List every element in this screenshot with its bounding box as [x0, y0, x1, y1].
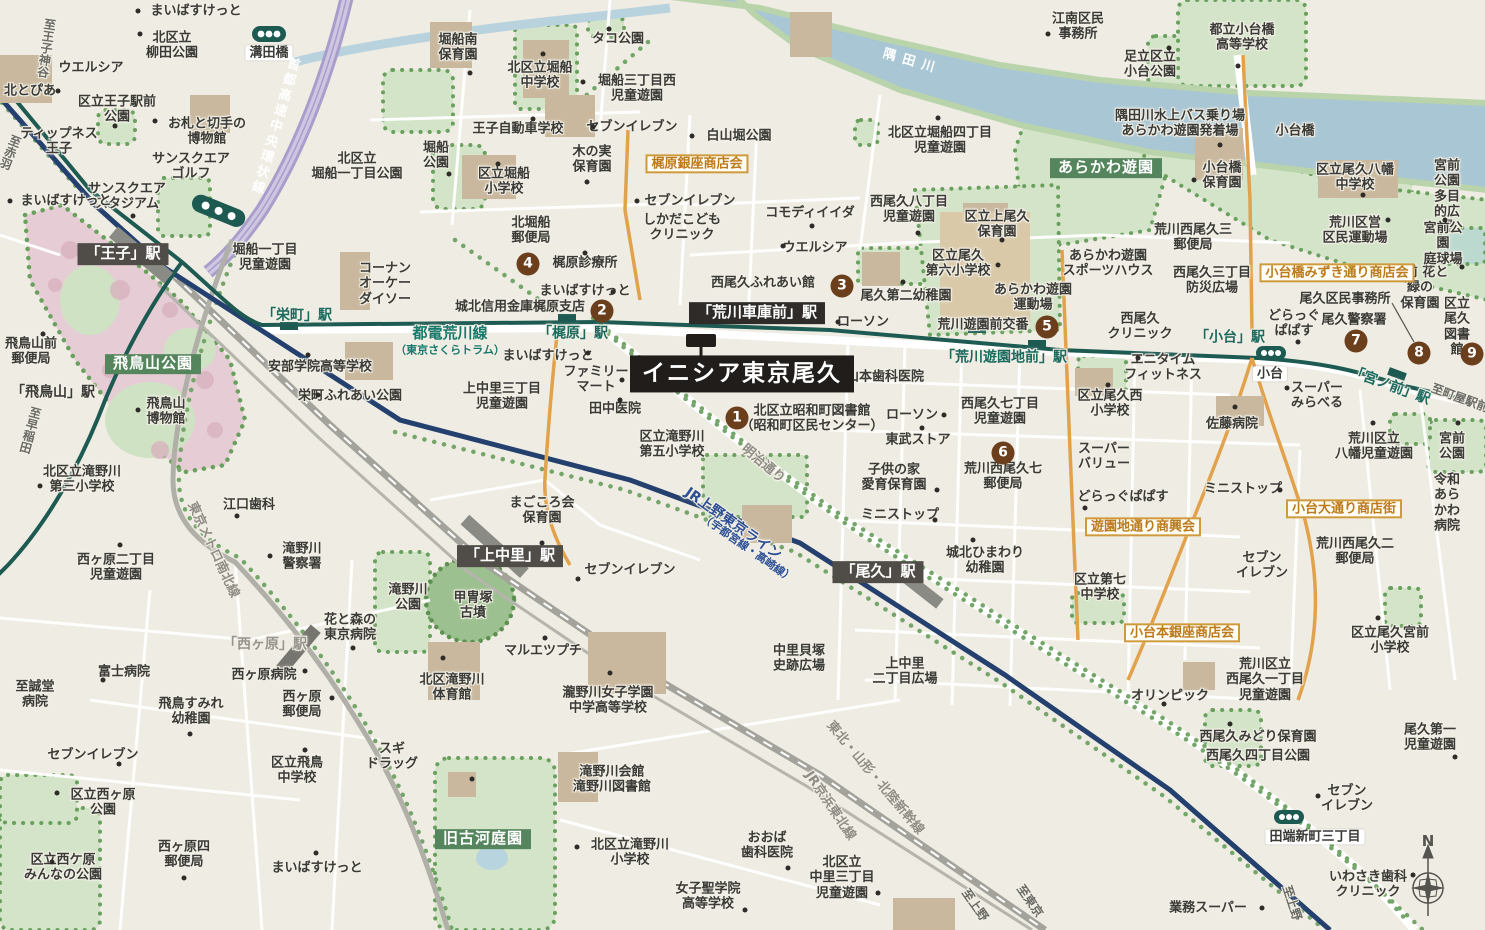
- poi-dot: [1296, 340, 1301, 345]
- place-label: 尾久第一 児童遊園: [1404, 723, 1456, 754]
- poi-dot: [607, 27, 612, 32]
- place-label: 北区立 中里三丁目 児童遊園: [809, 855, 874, 901]
- poi-dot: [1236, 64, 1241, 69]
- place-label: 西尾久八丁目 児童遊園: [870, 195, 948, 226]
- rail-line-name-label: JR上野東京ライン: [682, 485, 785, 564]
- place-label: 女子聖学院 高等学校: [675, 882, 740, 913]
- poi-dot: [618, 398, 623, 403]
- place-label: 区立尾久宮前 小学校: [1351, 626, 1429, 657]
- poi-dot: [901, 280, 906, 285]
- poi-dot: [303, 669, 308, 674]
- waterway-or-road-name-label: 首都高速中央環状線: [247, 55, 301, 198]
- place-label: 北区立 柳田公園: [146, 31, 198, 62]
- poi-dot: [836, 320, 841, 325]
- poi-dot: [576, 577, 581, 582]
- place-label: 北区立堀船 中学校: [507, 61, 572, 92]
- place-label: 区立上尾久 保育園: [964, 210, 1029, 241]
- place-label: 区立西ケ原 みんなの公園: [24, 853, 102, 884]
- poi-dot: [131, 214, 136, 219]
- place-label: 荒川西尾久七 郵便局: [964, 462, 1042, 493]
- place-label: ローソン: [886, 407, 938, 422]
- poi-dot: [1285, 386, 1290, 391]
- place-label: 区立第七 中学校: [1074, 573, 1126, 604]
- poi-dot: [314, 851, 319, 856]
- place-label: サンスクエア スタジアム: [88, 182, 166, 213]
- place-label: 上中里 二丁目広場: [872, 657, 937, 688]
- place-label: セブンイレブン: [644, 193, 735, 208]
- place-label: サンスクエア ゴルフ: [152, 152, 230, 183]
- poi-dot: [1316, 794, 1321, 799]
- place-label: 王子自動車学校: [472, 121, 563, 136]
- place-label: コモディイイダ: [765, 205, 855, 220]
- park-name-label: あらかわ遊園: [1050, 158, 1162, 178]
- direction-label: 至東京: [1014, 882, 1046, 920]
- poi-dot: [441, 656, 446, 661]
- place-label: 荒川遊園前交番: [937, 317, 1028, 332]
- poi-dot: [591, 125, 596, 130]
- rail-line-name-label: 東京メトロ南北線: [184, 500, 242, 601]
- numbered-marker-5: 5: [1036, 316, 1059, 339]
- poi-dot: [41, 332, 46, 337]
- tram-station-label: 「栄町」駅: [262, 308, 332, 325]
- poi-dot: [8, 199, 13, 204]
- place-label: スーパー みらべる: [1291, 381, 1343, 412]
- poi-dot: [1386, 218, 1391, 223]
- place-label: 北堀船 郵便局: [511, 216, 550, 247]
- tram-station-label: 「宮ノ前」駅: [1348, 364, 1433, 408]
- poi-dot: [1260, 906, 1265, 911]
- place-label: 宮前公園 庭球場: [1422, 221, 1464, 267]
- place-label: 尾久第二幼稚園: [860, 288, 951, 303]
- place-label: 区立堀船 小学校: [478, 167, 530, 198]
- poi-dot: [447, 172, 452, 177]
- poi-dot: [1192, 178, 1197, 183]
- map-labels-layer: まいばすけっと北区立 柳田公園溝田橋ウエルシア北とぴあ区立王子駅前 公園お札と切…: [0, 0, 1485, 930]
- place-label: セブンイレブン: [584, 562, 675, 577]
- poi-dot: [583, 251, 588, 256]
- poi-dot: [971, 538, 976, 543]
- tram-station-label: 「梶原」駅: [538, 326, 608, 343]
- place-label: 白山堀公園: [706, 128, 771, 143]
- place-label: 至誠堂 病院: [15, 680, 54, 711]
- numbered-marker-8: 8: [1408, 342, 1431, 365]
- poi-dot: [1460, 265, 1465, 270]
- place-label: 荒川西尾久二 郵便局: [1316, 537, 1394, 568]
- poi-dot: [781, 244, 786, 249]
- place-label: 西ヶ原二丁目 児童遊園: [77, 553, 155, 584]
- place-label: ファミリー マート: [563, 365, 628, 396]
- direction-label: 至上野: [1280, 884, 1305, 923]
- place-label: 西尾久四丁目公園: [1206, 748, 1310, 763]
- numbered-marker-4: 4: [517, 253, 540, 276]
- place-label: 東武ストア: [885, 432, 950, 447]
- place-label: 西尾久ふれあい館: [711, 275, 815, 290]
- poi-dot: [496, 162, 501, 167]
- poi-dot: [1136, 356, 1141, 361]
- direction-label: 至赤羽: [0, 133, 23, 172]
- place-label: 西尾久 クリニック: [1107, 312, 1172, 343]
- place-label: 北とぴあ: [4, 83, 56, 98]
- place-label: どらっぐ ぱぱす: [1268, 309, 1320, 340]
- place-label: 区立尾久西 小学校: [1077, 389, 1142, 420]
- poi-dot: [1376, 616, 1381, 621]
- place-label: まごころ会 保育園: [509, 496, 574, 527]
- place-label: ウエルシア: [782, 240, 847, 255]
- place-label: ティップネス 王子: [20, 127, 97, 158]
- numbered-marker-7: 7: [1345, 330, 1368, 353]
- place-label: 栄町ふれあい公園: [298, 388, 402, 403]
- poi-dot: [608, 671, 613, 676]
- poi-dot: [117, 762, 122, 767]
- place-label: 西尾久みどり保育園: [1199, 729, 1316, 744]
- place-label: 北区立滝野川 第三小学校: [43, 465, 121, 496]
- place-label: まいばすけっと: [150, 3, 241, 18]
- place-label: 堀船一丁目 児童遊園: [232, 243, 297, 274]
- place-label: お札と切手の 博物館: [168, 117, 246, 148]
- station-label: 「西ヶ原」駅: [223, 637, 307, 654]
- place-label: 尾久区民事務所: [1299, 291, 1390, 306]
- place-label: 堀船南 保育園: [438, 33, 477, 64]
- poi-dot: [996, 263, 1001, 268]
- place-label: 飛鳥山前 郵便局: [5, 337, 57, 368]
- place-label: ミニストップ: [1204, 481, 1282, 496]
- park-name-label: 飛鳥山公園: [105, 354, 201, 374]
- place-label: 甲冑塚 古墳: [453, 591, 492, 622]
- place-label: 北区滝野川 体育館: [419, 673, 484, 704]
- kami-nakazato-station-label: 「上中里」駅: [457, 545, 563, 567]
- place-label: 荒川区立 西尾久一丁目 児童遊園: [1226, 657, 1304, 703]
- place-label: スーパー バリュー: [1078, 442, 1130, 473]
- place-label: どらっぐぱぱす: [1077, 489, 1168, 504]
- oku-station-label: 「尾久」駅: [832, 561, 923, 583]
- poi-dot: [38, 484, 43, 489]
- place-label: 小台橋: [1275, 123, 1314, 138]
- poi-dot: [1361, 193, 1366, 198]
- poi-dot: [1278, 488, 1283, 493]
- poi-dot: [531, 117, 536, 122]
- place-label: しかだこども クリニック: [643, 213, 721, 244]
- poi-dot: [935, 488, 940, 493]
- place-label: 西ヶ原四 郵便局: [158, 840, 210, 871]
- place-label: 佐藤病院: [1206, 416, 1258, 431]
- place-label: 荒川西尾久三 郵便局: [1154, 223, 1232, 254]
- poi-dot: [942, 413, 947, 418]
- tram-line-name-label: （東京さくらトラム）: [395, 345, 505, 358]
- poi-dot: [351, 646, 356, 651]
- place-label: まいばすけっと: [271, 860, 362, 875]
- poi-dot: [575, 845, 580, 850]
- poi-dot: [1106, 383, 1111, 388]
- place-label: 江口歯科: [223, 497, 275, 512]
- poi-dot: [1443, 218, 1448, 223]
- poi-dot: [541, 52, 546, 57]
- place-label: 北区立昭和町図書館 （昭和町区民センター）: [740, 404, 883, 435]
- place-label: 北区立 堀船一丁目公園: [311, 152, 402, 183]
- place-label: 西ヶ原 郵便局: [282, 690, 321, 721]
- poi-dot: [136, 408, 141, 413]
- shopping-street-label: 遊園地通り商興会: [1085, 517, 1201, 536]
- place-label: コーナン オーケー ダイソー: [359, 261, 411, 307]
- poi-dot: [118, 543, 123, 548]
- arakawa-shako-mae-station-label: 「荒川車庫前」駅: [689, 302, 825, 324]
- place-label: 瀧野川女子学園 中学高等学校: [562, 686, 653, 717]
- place-label: まいばすけっと: [20, 193, 111, 208]
- direction-label: 至上野: [959, 886, 991, 924]
- place-label: 飛鳥山 博物館: [146, 397, 185, 428]
- direction-label: 至町屋駅前: [1429, 381, 1485, 415]
- place-label: 宮前公園 多目的広場: [1428, 159, 1466, 236]
- poi-dot: [690, 134, 695, 139]
- direction-label: 至王子神谷: [35, 17, 57, 78]
- tram-line-name-label: 都電荒川線: [412, 325, 487, 343]
- place-label: 子供の家 愛育保育園: [861, 463, 926, 494]
- place-label: 宮前 花と緑の 保育園: [1388, 265, 1453, 311]
- place-label: 田中医院: [589, 401, 641, 416]
- poi-dot: [586, 351, 591, 356]
- place-label: 尾久警察署: [1321, 312, 1386, 327]
- place-label: マルエツプチ: [504, 643, 582, 658]
- place-label: 上中里三丁目 児童遊園: [463, 382, 541, 413]
- poi-dot: [1233, 405, 1238, 410]
- place-label: 区立尾久 図書館: [1443, 296, 1471, 357]
- shopping-street-label: 小台大通り商店街: [1286, 499, 1402, 518]
- place-label: 堀船三丁目西 児童遊園: [598, 74, 676, 105]
- place-label: 区立尾久 第六小学校: [925, 249, 990, 280]
- poi-dot: [620, 378, 625, 383]
- poi-dot: [470, 777, 475, 782]
- numbered-marker-9: 9: [1461, 343, 1484, 366]
- place-label: 木の実 保育園: [572, 145, 611, 176]
- place-label: 業務スーパー: [1169, 900, 1247, 915]
- poi-dot: [1083, 506, 1088, 511]
- park-name-label: 旧古河庭園: [435, 829, 531, 849]
- poi-dot: [1371, 421, 1376, 426]
- poi-dot: [826, 360, 831, 365]
- place-label: セブンイレブン: [586, 119, 677, 134]
- place-label: まいばすけっと: [539, 283, 630, 298]
- poi-dot: [303, 748, 308, 753]
- tram-station-label: 「小台」駅: [1195, 330, 1265, 347]
- place-label: セブンイレブン: [47, 747, 138, 762]
- place-label: 滝野川 公園: [388, 583, 427, 614]
- poi-dot: [1046, 32, 1051, 37]
- place-label: スギ ドラッグ: [366, 742, 418, 773]
- shopping-street-label: 小台本銀座商店会: [1124, 623, 1240, 642]
- place-label: 令和 あらかわ 病院: [1428, 472, 1466, 533]
- rail-line-name-label: （宇都宮線・高崎線）: [698, 512, 796, 586]
- poi-dot: [316, 393, 321, 398]
- tram-station-label: 「荒川遊園地前」駅: [941, 350, 1067, 367]
- place-label: 小台橋 保育園: [1202, 161, 1241, 192]
- place-label: 飛鳥すみれ 幼稚園: [158, 697, 223, 728]
- poi-dot: [1218, 143, 1223, 148]
- place-label: 区立飛鳥 中学校: [271, 756, 323, 787]
- direction-label: 至早稲田: [17, 405, 43, 455]
- numbered-marker-3: 3: [831, 275, 854, 298]
- poi-dot: [540, 541, 545, 546]
- place-chip: 小台: [1253, 366, 1287, 381]
- place-label: ウエルシア: [58, 60, 123, 75]
- place-label: 荒川区営 区民運動場: [1322, 216, 1387, 247]
- place-label: 花と森の 東京病院: [324, 613, 376, 644]
- poi-dot: [635, 199, 640, 204]
- poi-dot: [50, 860, 55, 865]
- place-label: 隅田川水上バス乗り場 あらかわ遊園発着場: [1115, 109, 1245, 140]
- poi-dot: [268, 554, 273, 559]
- place-label: オリンピック: [1131, 688, 1209, 703]
- poi-dot: [585, 180, 590, 185]
- place-label: セブン イレブン: [1321, 784, 1373, 815]
- rail-line-name-label: 明治通り: [738, 441, 788, 486]
- poi-dot: [581, 80, 586, 85]
- poi-dot: [1456, 421, 1461, 426]
- place-label: 区立王子駅前 公園: [78, 95, 156, 126]
- place-label: 区立西ヶ原 公園: [70, 788, 135, 819]
- poi-dot: [113, 124, 118, 129]
- poi-dot: [543, 636, 548, 641]
- place-label: おおば 歯科医院: [741, 831, 793, 862]
- poi-dot: [235, 514, 240, 519]
- poi-dot: [468, 71, 473, 76]
- poi-dot: [743, 908, 748, 913]
- place-label: 山本歯科医院: [846, 369, 924, 384]
- place-label: 城北信用金庫梶原支店: [455, 299, 585, 314]
- place-label: 堀船 公園: [423, 141, 449, 172]
- map-canvas: まいばすけっと北区立 柳田公園溝田橋ウエルシア北とぴあ区立王子駅前 公園お札と切…: [0, 0, 1485, 930]
- place-label: ミニストップ: [861, 507, 939, 522]
- place-label: 滝野川 警察署: [282, 542, 321, 573]
- place-label: 西ヶ原病院: [231, 667, 296, 682]
- place-label: 区立滝野川 第五小学校: [639, 430, 704, 461]
- place-label: エニタイム フィットネス: [1124, 353, 1202, 384]
- place-label: あらかわ遊園 スポーツハウス: [1063, 249, 1154, 280]
- station-label: 「飛鳥山」駅: [11, 385, 95, 402]
- poi-dot: [1162, 702, 1167, 707]
- poi-dot: [138, 32, 143, 37]
- place-label: ローソン: [837, 314, 889, 329]
- poi-dot: [786, 866, 791, 871]
- poi-dot: [182, 876, 187, 881]
- poi-dot: [1167, 46, 1172, 51]
- place-label: 西尾久三丁目 防災広場: [1173, 266, 1251, 297]
- place-label: 北区立堀船四丁目 児童遊園: [888, 126, 992, 157]
- place-label: 江南区民 事務所: [1052, 12, 1104, 43]
- property-name-label: イニシア東京尾久: [630, 355, 854, 392]
- place-label: 北区立滝野川 小学校: [591, 838, 669, 869]
- poi-dot: [153, 119, 158, 124]
- rail-line-name-label: 東北・山形・北陸新幹線: [823, 718, 927, 837]
- place-label: 区立尾久八幡 中学校: [1316, 163, 1394, 194]
- place-label: 荒川区立 八幡児童遊園: [1335, 432, 1413, 463]
- place-label: 宮前 公園: [1439, 432, 1465, 463]
- place-chip: 田端新町三丁目: [1265, 829, 1364, 844]
- poi-dot: [1228, 722, 1233, 727]
- place-label: 滝野川会館 滝野川図書館: [573, 765, 651, 796]
- oji-station-label: 「王子」駅: [77, 243, 168, 265]
- poi-dot: [56, 89, 61, 94]
- place-chip: 溝田橋: [245, 45, 292, 60]
- place-label: 梶原診療所: [552, 255, 617, 270]
- shopping-street-label: 小台橋みずき通り商店会: [1259, 263, 1414, 282]
- shopping-street-label: 梶原銀座商店会: [645, 154, 748, 173]
- poi-dot: [920, 426, 925, 431]
- poi-dot: [1411, 873, 1416, 878]
- rail-line-name-label: JR京浜東北線: [801, 769, 858, 844]
- place-label: 都立小台橋 高等学校: [1209, 23, 1274, 54]
- poi-dot: [1000, 238, 1005, 243]
- numbered-marker-2: 2: [591, 300, 614, 323]
- poi-dot: [933, 518, 938, 523]
- poi-dot: [611, 290, 616, 295]
- place-label: 足立区立 小台公園: [1124, 50, 1176, 81]
- poi-dot: [136, 9, 141, 14]
- place-label: まいばすけっと: [502, 348, 593, 363]
- poi-dot: [306, 353, 311, 358]
- poi-dot: [876, 891, 881, 896]
- numbered-marker-1: 1: [726, 407, 749, 430]
- poi-dot: [936, 116, 941, 121]
- poi-dot: [1453, 755, 1458, 760]
- place-label: あらかわ遊園 運動場: [994, 283, 1072, 314]
- place-label: セブン イレブン: [1236, 551, 1288, 582]
- place-label: 富士病院: [98, 664, 150, 679]
- poi-dot: [55, 791, 60, 796]
- poi-dot: [330, 696, 335, 701]
- poi-dot: [101, 678, 106, 683]
- waterway-or-road-name-label: 隅田川: [881, 46, 943, 77]
- place-label: いわさき歯科 クリニック: [1329, 870, 1407, 901]
- place-label: 中里貝塚 史跡広場: [773, 644, 825, 675]
- poi-dot: [916, 231, 921, 236]
- place-label: 安部学院高等学校: [268, 359, 372, 374]
- poi-dot: [188, 732, 193, 737]
- place-label: 城北ひまわり 幼稚園: [946, 546, 1024, 577]
- numbered-marker-6: 6: [992, 442, 1015, 465]
- poi-dot: [810, 224, 815, 229]
- place-label: タコ公園: [592, 31, 644, 46]
- place-label: 西尾久七丁目 児童遊園: [961, 397, 1039, 428]
